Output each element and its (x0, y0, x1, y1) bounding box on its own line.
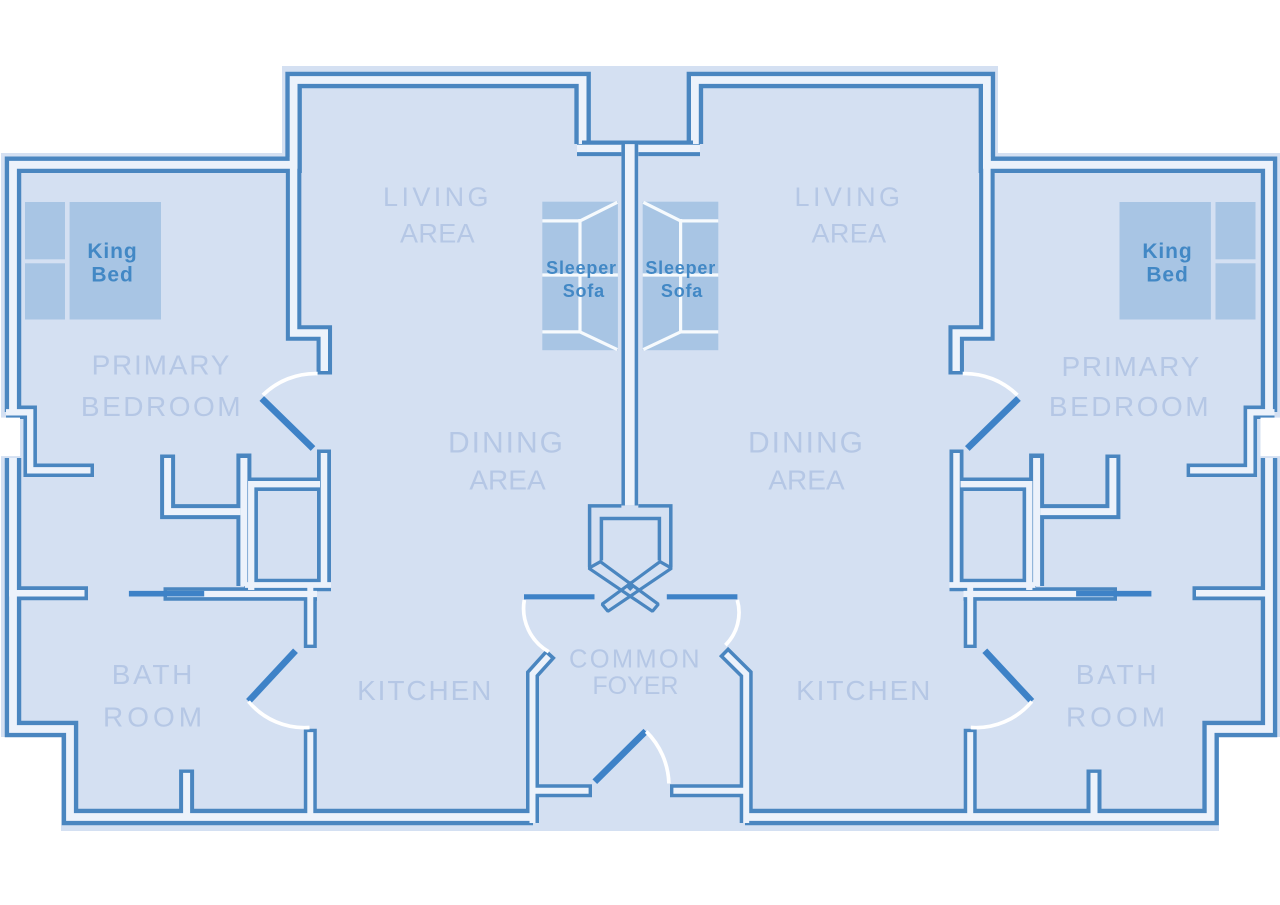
svg-text:AREA: AREA (811, 219, 886, 249)
svg-text:COMMON: COMMON (569, 646, 702, 674)
svg-text:AREA: AREA (400, 219, 475, 249)
svg-text:PRIMARY: PRIMARY (92, 350, 232, 381)
svg-text:KITCHEN: KITCHEN (357, 675, 493, 706)
svg-text:BATH: BATH (1076, 659, 1159, 690)
svg-text:DINING: DINING (748, 426, 865, 459)
svg-text:BEDROOM: BEDROOM (81, 391, 243, 422)
svg-text:King: King (1142, 240, 1192, 263)
svg-text:ROOM: ROOM (103, 702, 206, 733)
svg-text:Sleeper: Sleeper (645, 258, 716, 278)
svg-text:AREA: AREA (768, 465, 845, 496)
svg-text:Bed: Bed (91, 263, 133, 286)
svg-text:PRIMARY: PRIMARY (1061, 351, 1201, 382)
svg-text:Sofa: Sofa (661, 281, 703, 301)
svg-text:Sofa: Sofa (563, 281, 605, 301)
svg-text:LIVING: LIVING (383, 182, 492, 212)
svg-text:FOYER: FOYER (592, 672, 678, 700)
svg-text:Sleeper: Sleeper (546, 258, 617, 278)
svg-text:KITCHEN: KITCHEN (796, 675, 932, 706)
svg-text:ROOM: ROOM (1066, 702, 1169, 733)
svg-text:BEDROOM: BEDROOM (1049, 391, 1211, 422)
svg-text:Bed: Bed (1146, 263, 1188, 286)
svg-text:LIVING: LIVING (795, 182, 904, 212)
svg-text:BATH: BATH (112, 659, 195, 690)
svg-text:King: King (87, 240, 137, 263)
svg-text:AREA: AREA (469, 465, 546, 496)
svg-text:DINING: DINING (448, 426, 565, 459)
